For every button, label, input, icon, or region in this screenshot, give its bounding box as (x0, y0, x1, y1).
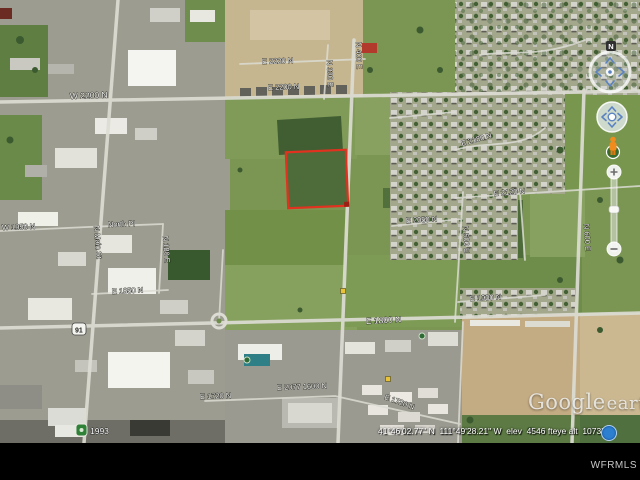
parcel-highlight (286, 150, 349, 210)
pegman-icon[interactable] (610, 137, 616, 143)
street-label: E 1720 N (200, 391, 232, 401)
look-center-eye[interactable] (608, 70, 612, 74)
street-label: N 330 E (325, 60, 335, 87)
route-91-number: 91 (75, 328, 83, 335)
year-overlay: 1993 (90, 426, 109, 436)
street-label: N 500 E (461, 226, 471, 254)
poi-square-yellow (386, 377, 391, 382)
street-label: N 180 E (161, 236, 172, 264)
street-label: N 400 E (354, 42, 364, 69)
zoom-slider-handle[interactable] (609, 206, 619, 213)
poi-square-yellow (341, 289, 346, 294)
street-label: E 1850 N (112, 285, 144, 296)
coordinates-readout: 41°46'02.77" N 111°49'28.21" W (378, 426, 502, 440)
terrain-base (0, 0, 640, 443)
street-label: E 2077 1600 N (277, 381, 327, 392)
street-label: E 1800 N (366, 314, 402, 326)
route-91-shield: 91 (72, 323, 86, 335)
google-logo-text: Google (528, 390, 606, 414)
street-label: E 2220 N (262, 56, 294, 66)
poi-dot-green (419, 333, 425, 339)
earth-logo-text: earth (607, 393, 640, 414)
elevation-readout: elev 4546 ft (506, 426, 552, 440)
move-joystick[interactable] (597, 102, 627, 132)
street-label: W 1950 N (2, 222, 36, 232)
wfrmls-watermark: WFRMLS (591, 460, 637, 471)
green-route-shield (76, 424, 87, 436)
bottom-letterbox-bar: WFRMLS (0, 443, 640, 480)
street-label: North Pl (108, 219, 136, 229)
move-center-dot[interactable] (608, 113, 616, 121)
poi-dot-green (244, 357, 250, 363)
north-label: N (608, 42, 613, 51)
streaming-globe-icon (601, 425, 617, 441)
street-label: E 2200 N (268, 82, 300, 92)
google-earth-window: 91 1993 W 2200 NE 2220 NE 2200 NN 330 EN… (0, 0, 640, 480)
map-viewport[interactable]: 91 1993 W 2200 NE 2220 NE 2200 NN 330 EN… (0, 0, 640, 443)
google-earth-watermark: Google earth (528, 390, 640, 414)
warehouse-building (128, 50, 176, 86)
street-label: N 600 E (582, 224, 592, 252)
status-bar: 41°46'02.77" N 111°49'28.21" W elev 4546… (378, 426, 600, 440)
street-label: E 1900 N (470, 292, 502, 303)
red-parcel-outline (286, 150, 348, 209)
street-label: W 2200 N (70, 90, 108, 101)
street-label: E 2050 N (406, 214, 438, 225)
